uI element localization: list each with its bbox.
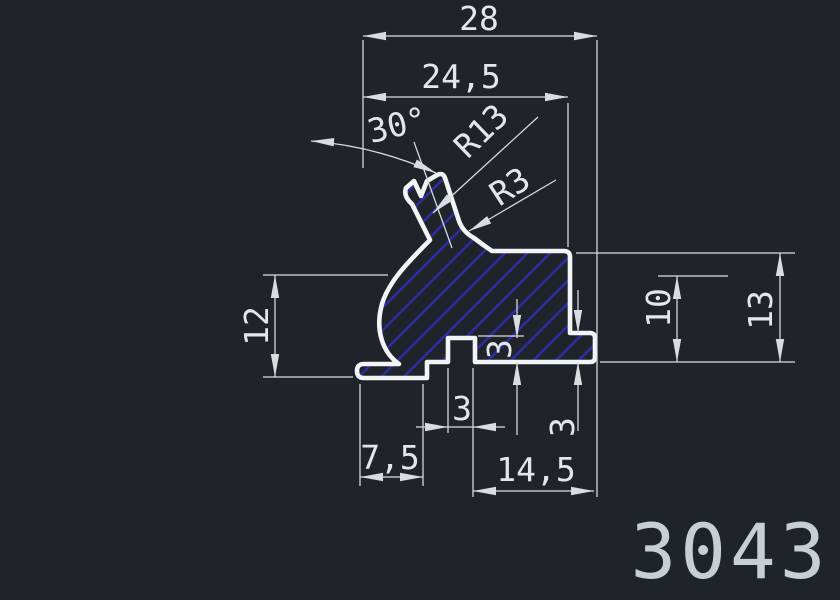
dim-12-label: 12	[237, 306, 276, 346]
cad-viewport: 28 24,5 30° R13 R3	[0, 0, 840, 600]
dim-3-step-label: 3	[480, 339, 519, 359]
part-number: 3043	[630, 507, 829, 596]
dim-10-label: 10	[639, 288, 678, 328]
dim-13-label: 13	[741, 290, 780, 330]
dim-3-flange-label: 3	[543, 417, 582, 437]
cad-drawing: 28 24,5 30° R13 R3	[0, 0, 840, 600]
dim-24-5-label: 24,5	[421, 57, 500, 96]
dim-7-5-label: 7,5	[360, 438, 420, 477]
dim-14-5-label: 14,5	[496, 450, 575, 489]
dim-3-width-label: 3	[452, 389, 472, 428]
dim-28-label: 28	[459, 0, 499, 38]
